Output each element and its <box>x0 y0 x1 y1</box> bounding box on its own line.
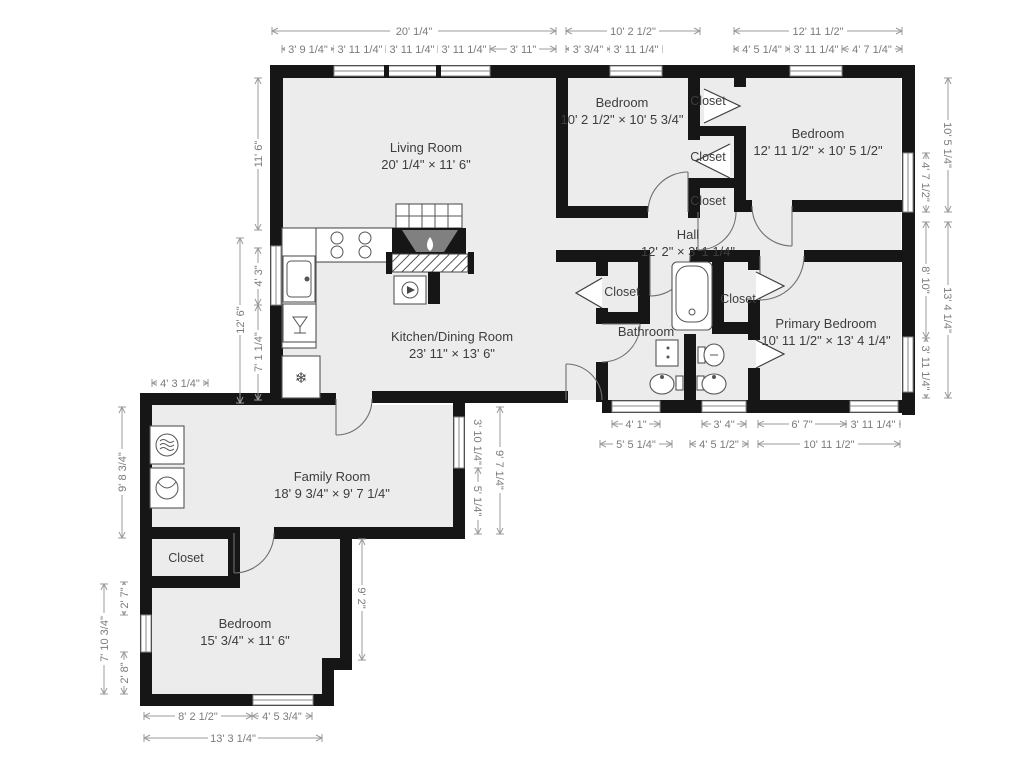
svg-text:13' 3 1/4": 13' 3 1/4" <box>210 733 256 745</box>
room-dims-living: 20' 1/4" × 11' 6" <box>381 157 471 172</box>
svg-text:3' 11 1/4": 3' 11 1/4" <box>794 44 839 56</box>
vanity-icon <box>656 340 678 366</box>
svg-text:4' 3": 4' 3" <box>253 265 265 286</box>
svg-text:5' 1/4": 5' 1/4" <box>471 486 483 517</box>
dimension: 3' 9 1/4" <box>282 43 334 56</box>
faucet-icon <box>712 375 716 379</box>
faucet-icon <box>305 277 310 282</box>
dishwasher-icon <box>283 304 316 342</box>
svg-text:20' 1/4": 20' 1/4" <box>396 26 433 38</box>
dimension: 3' 11 1/4" <box>334 43 386 56</box>
wall <box>468 252 474 274</box>
closet-label: Closet <box>720 292 756 306</box>
wall <box>748 250 760 270</box>
svg-text:4' 1": 4' 1" <box>625 419 646 431</box>
floor-plan: ❄ 20' <box>0 0 1024 768</box>
svg-text:3' 10 1/4": 3' 10 1/4" <box>471 419 483 465</box>
svg-text:10' 2 1/2": 10' 2 1/2" <box>610 26 656 38</box>
dimension: 3' 10 1/4" <box>471 416 484 468</box>
room-dims-bedroom1: 10' 2 1/2" × 10' 5 3/4" <box>561 112 684 127</box>
svg-text:5' 5 1/4": 5' 5 1/4" <box>616 439 656 451</box>
dimension: 3' 11 1/4" <box>919 338 932 398</box>
wall <box>140 393 152 539</box>
svg-text:8' 2 1/2": 8' 2 1/2" <box>178 711 218 723</box>
room-label-living: Living Room <box>390 140 462 155</box>
svg-text:3' 9 1/4": 3' 9 1/4" <box>288 44 328 56</box>
svg-text:3' 11 1/4": 3' 11 1/4" <box>614 44 659 56</box>
dimension: 4' 5 1/2" <box>690 438 748 451</box>
svg-text:9' 2": 9' 2" <box>355 587 367 608</box>
room-label-primary: Primary Bedroom <box>775 316 876 331</box>
family-room-floor <box>152 405 453 527</box>
room-dims-primary: 10' 11 1/2" × 13' 4 1/4" <box>761 333 891 348</box>
wall <box>140 576 240 588</box>
dimension: 4' 7 1/2" <box>919 153 932 212</box>
room-label-kitchen: Kitchen/Dining Room <box>391 329 513 344</box>
room-label-bedroom3: Bedroom <box>219 616 272 631</box>
dimension: 4' 7 1/4" <box>842 43 902 56</box>
closet-label: Closet <box>604 285 640 299</box>
wall <box>734 126 746 212</box>
room-label-bathroom: Bathroom <box>618 324 674 339</box>
window-mullion <box>436 65 441 77</box>
svg-text:7' 1 1/4": 7' 1 1/4" <box>253 332 265 372</box>
closet-label: Closet <box>168 551 204 565</box>
svg-text:8' 10": 8' 10" <box>919 266 931 294</box>
room-dims-kitchen: 23' 11" × 13' 6" <box>409 346 495 361</box>
dimension: 4' 5 1/4" <box>734 43 790 56</box>
wall <box>556 206 648 218</box>
doorway-floor <box>336 395 372 411</box>
room-dims-hall: 12' 2" × 3' 1 1/4" <box>641 244 735 259</box>
closet-label: Closet <box>690 150 726 164</box>
wall <box>140 527 234 539</box>
svg-text:4' 3 1/4": 4' 3 1/4" <box>160 378 200 390</box>
svg-text:10' 11 1/2": 10' 11 1/2" <box>803 439 854 451</box>
svg-text:3' 11 1/4": 3' 11 1/4" <box>338 44 383 56</box>
closet-label: Closet <box>690 194 726 208</box>
snowflake-icon: ❄ <box>295 371 308 387</box>
svg-text:2' 7": 2' 7" <box>119 587 131 608</box>
wall <box>712 250 724 322</box>
svg-text:4' 5 1/2": 4' 5 1/2" <box>699 439 739 451</box>
svg-text:12' 11 1/2": 12' 11 1/2" <box>792 26 843 38</box>
svg-text:4' 7 1/4": 4' 7 1/4" <box>852 44 892 56</box>
room-dims-family: 18' 9 3/4" × 9' 7 1/4" <box>274 486 390 501</box>
wall <box>804 250 902 262</box>
faucet-icon <box>660 375 664 379</box>
wall <box>734 65 746 87</box>
sink-counter <box>676 376 683 390</box>
wall <box>596 250 608 276</box>
wall <box>748 368 760 402</box>
svg-text:7' 10 3/4": 7' 10 3/4" <box>99 616 111 662</box>
svg-text:10' 5 1/4": 10' 5 1/4" <box>941 122 953 168</box>
wall <box>712 322 748 334</box>
wall <box>386 252 392 274</box>
svg-text:4' 5 1/4": 4' 5 1/4" <box>742 44 782 56</box>
svg-text:3' 4": 3' 4" <box>713 419 734 431</box>
wall <box>734 200 752 212</box>
dimension: 3' 3/4" <box>566 43 610 56</box>
svg-text:3' 11 1/4": 3' 11 1/4" <box>851 419 896 431</box>
dimension: 4' 5 3/4" <box>252 710 312 723</box>
wall <box>556 250 594 262</box>
room-label-bedroom1: Bedroom <box>596 95 649 110</box>
svg-text:3' 11 1/4": 3' 11 1/4" <box>919 346 931 391</box>
dimension: 3' 11 1/4" <box>846 418 900 431</box>
floor-plan-svg: ❄ 20' <box>0 0 1024 768</box>
svg-text:3' 11 1/4": 3' 11 1/4" <box>390 44 435 56</box>
stove-icon <box>316 228 398 262</box>
svg-text:3' 11 1/4": 3' 11 1/4" <box>442 44 487 56</box>
wall <box>322 658 334 706</box>
wall <box>270 65 283 255</box>
wall <box>792 200 902 212</box>
fireplace-hearth <box>392 254 468 272</box>
wall <box>274 527 465 539</box>
room-label-bedroom2: Bedroom <box>792 126 845 141</box>
svg-text:6' 7": 6' 7" <box>791 419 812 431</box>
room-label-hall: Hall <box>677 227 700 242</box>
svg-text:3' 11": 3' 11" <box>510 44 537 56</box>
room-label-family: Family Room <box>294 469 371 484</box>
svg-text:9' 8 3/4": 9' 8 3/4" <box>117 452 129 492</box>
dimension: 3' 11 1/4" <box>386 43 438 56</box>
closet-label: Closet <box>690 94 726 108</box>
wall <box>428 272 440 304</box>
wall <box>684 334 696 402</box>
svg-text:4' 7 1/2": 4' 7 1/2" <box>919 162 931 202</box>
dimension: 3' 11 1/4" <box>438 43 490 56</box>
svg-text:9' 7 1/4": 9' 7 1/4" <box>493 450 505 490</box>
svg-text:13' 4 1/4": 13' 4 1/4" <box>941 287 953 333</box>
dimension: 4' 3 1/4" <box>152 377 208 390</box>
wall <box>340 527 352 670</box>
wall <box>372 391 568 403</box>
svg-text:4' 5 3/4": 4' 5 3/4" <box>262 711 302 723</box>
svg-text:3' 3/4": 3' 3/4" <box>573 44 604 56</box>
dimension: 3' 11 1/4" <box>610 43 662 56</box>
wall <box>556 65 568 218</box>
wall <box>596 312 650 324</box>
svg-text:12' 6": 12' 6" <box>235 306 247 334</box>
window-mullion <box>384 65 389 77</box>
room-dims-bedroom3: 15' 3/4" × 11' 6" <box>200 633 290 648</box>
svg-text:11' 6": 11' 6" <box>253 141 265 168</box>
dimension: 3' 11 1/4" <box>790 43 842 56</box>
svg-text:2' 8": 2' 8" <box>119 662 131 683</box>
dimension: 2' 7" <box>118 582 131 615</box>
room-dims-bedroom2: 12' 11 1/2" × 10' 5 1/2" <box>753 143 883 158</box>
wall <box>748 300 760 340</box>
